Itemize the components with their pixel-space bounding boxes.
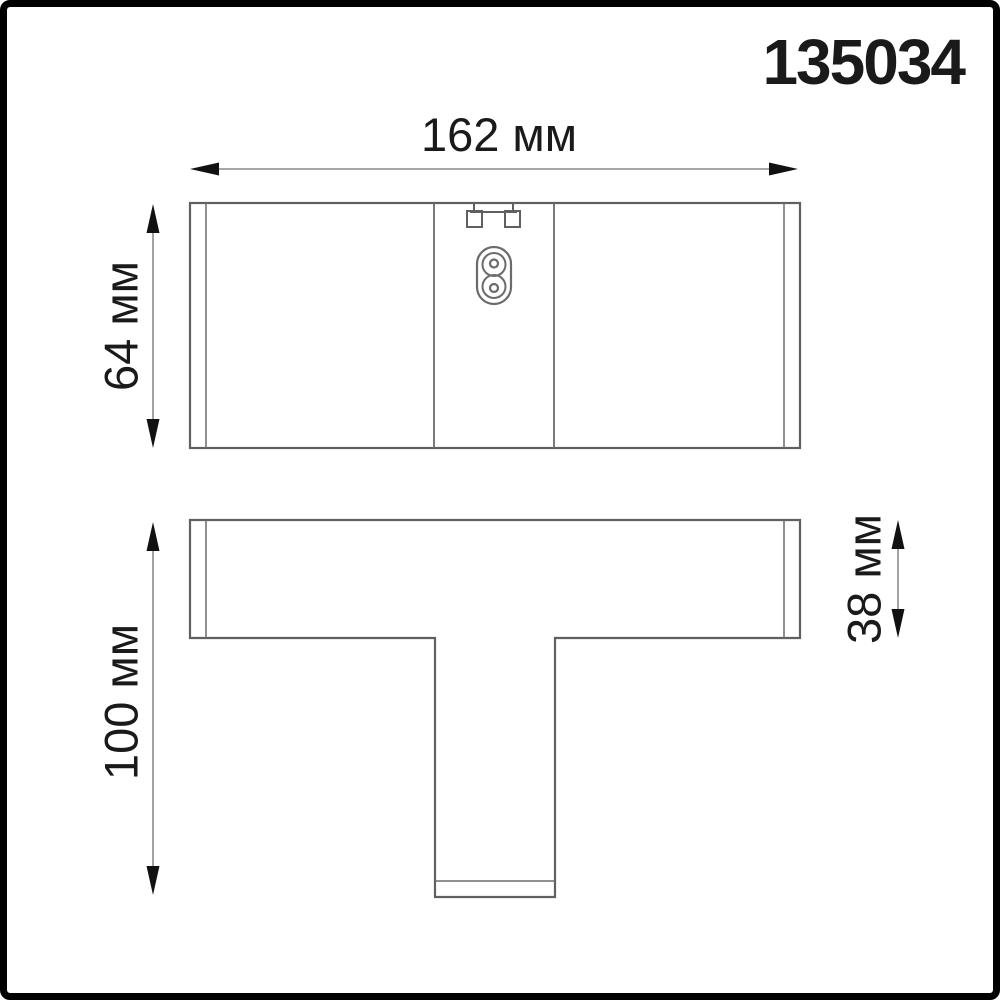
dimension-height38-label: 38 мм (838, 514, 891, 644)
arrowhead-up-icon (892, 520, 905, 549)
dimension-drawing: 162 мм 64 мм 100 мм 38 мм (0, 0, 1000, 1000)
article-number: 135034 (762, 30, 964, 94)
dimension-height-64: 64 мм (95, 204, 160, 448)
side-view-outline (190, 520, 800, 897)
dimension-height-38: 38 мм (838, 514, 905, 644)
arrowhead-right-icon (769, 163, 798, 176)
front-view-outline (190, 203, 800, 448)
arrowhead-left-icon (190, 163, 219, 176)
dimension-height100-label: 100 мм (95, 624, 148, 780)
dimension-width-162: 162 мм (190, 108, 798, 176)
front-view (190, 203, 800, 448)
arrowhead-down-icon (147, 866, 160, 895)
technical-drawing-page: 162 мм 64 мм 100 мм 38 мм 135034 (0, 0, 1000, 1000)
dimension-width-label: 162 мм (421, 108, 577, 161)
arrowhead-up-icon (147, 522, 160, 551)
arrowhead-down-icon (892, 609, 905, 638)
arrowhead-up-icon (147, 204, 160, 233)
side-view (190, 520, 800, 897)
arrowhead-down-icon (147, 419, 160, 448)
dimension-height64-label: 64 мм (95, 261, 148, 391)
dimension-height-100: 100 мм (95, 522, 160, 895)
